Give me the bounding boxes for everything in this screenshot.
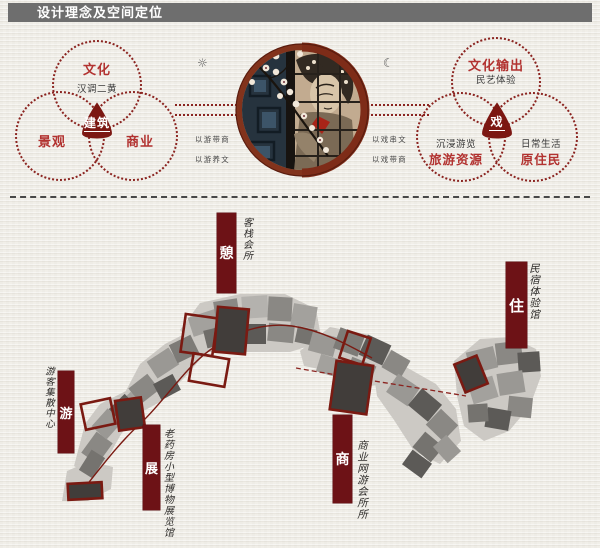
venn-right-note-1: 以戏串文: [372, 134, 407, 144]
venn-right-bl-sub: 沉浸游览: [432, 136, 480, 150]
banner-rest: 憩: [217, 213, 236, 293]
venn-left-center-label: 建筑: [84, 114, 110, 132]
venn-right-center-label: 戏: [489, 113, 505, 131]
dotted-connector: [175, 104, 237, 106]
label-inn-club: 客栈会所: [240, 217, 251, 261]
label-visitor-center: 游客集散中心: [42, 366, 52, 429]
label-pharmacy-museum: 老药房小型博物展览馆: [161, 428, 172, 538]
banner-tour: 游: [58, 371, 74, 453]
dotted-connector: [367, 104, 429, 106]
site-plan: [0, 200, 600, 548]
venn-right-br-label: 原住民: [518, 149, 564, 168]
venn-left-note-1: 以游带商: [195, 134, 230, 144]
venn-right-bl-label: 旅游资源: [426, 149, 486, 168]
label-homestay-hall: 民宿体验馆: [528, 263, 539, 321]
venn-right-note-2: 以戏带商: [372, 154, 407, 164]
dotted-connector: [175, 114, 237, 116]
banner-commerce: 商: [333, 415, 352, 503]
venn-left-bl-label: 景观: [30, 131, 74, 150]
banner-exhibit: 展: [143, 425, 160, 510]
moon-icon: ☾: [383, 56, 394, 70]
label-commerce-club: 商业网游会所所: [356, 440, 367, 521]
banner-live: 住: [506, 262, 527, 348]
venn-left-top-label: 文化: [75, 59, 119, 78]
section-divider: [10, 196, 590, 198]
venn-left-br-label: 商业: [118, 131, 162, 150]
venn-right-top-sub: 民艺体验: [470, 72, 522, 86]
opera-medallion-image: [230, 38, 374, 186]
venn-left-top-sub: 汉调二黄: [68, 81, 126, 95]
venn-left-note-2: 以游养文: [195, 154, 230, 164]
sun-icon: ☼: [197, 56, 208, 70]
venn-right-br-sub: 日常生活: [517, 136, 565, 150]
dotted-connector: [367, 114, 429, 116]
page-title: 设计理念及空间定位: [8, 3, 592, 22]
